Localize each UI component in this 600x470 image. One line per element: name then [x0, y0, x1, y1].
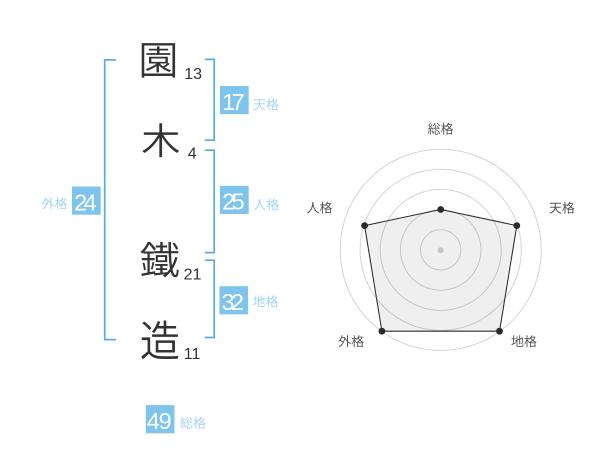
- svg-text:4: 4: [188, 146, 197, 163]
- svg-text:21: 21: [184, 266, 202, 283]
- svg-text:11: 11: [184, 346, 201, 363]
- svg-text:25: 25: [222, 189, 245, 215]
- svg-text:17: 17: [222, 89, 245, 115]
- svg-text:24: 24: [74, 189, 97, 215]
- svg-text:49: 49: [147, 408, 172, 434]
- svg-text:13: 13: [184, 66, 202, 83]
- svg-text:32: 32: [222, 289, 245, 315]
